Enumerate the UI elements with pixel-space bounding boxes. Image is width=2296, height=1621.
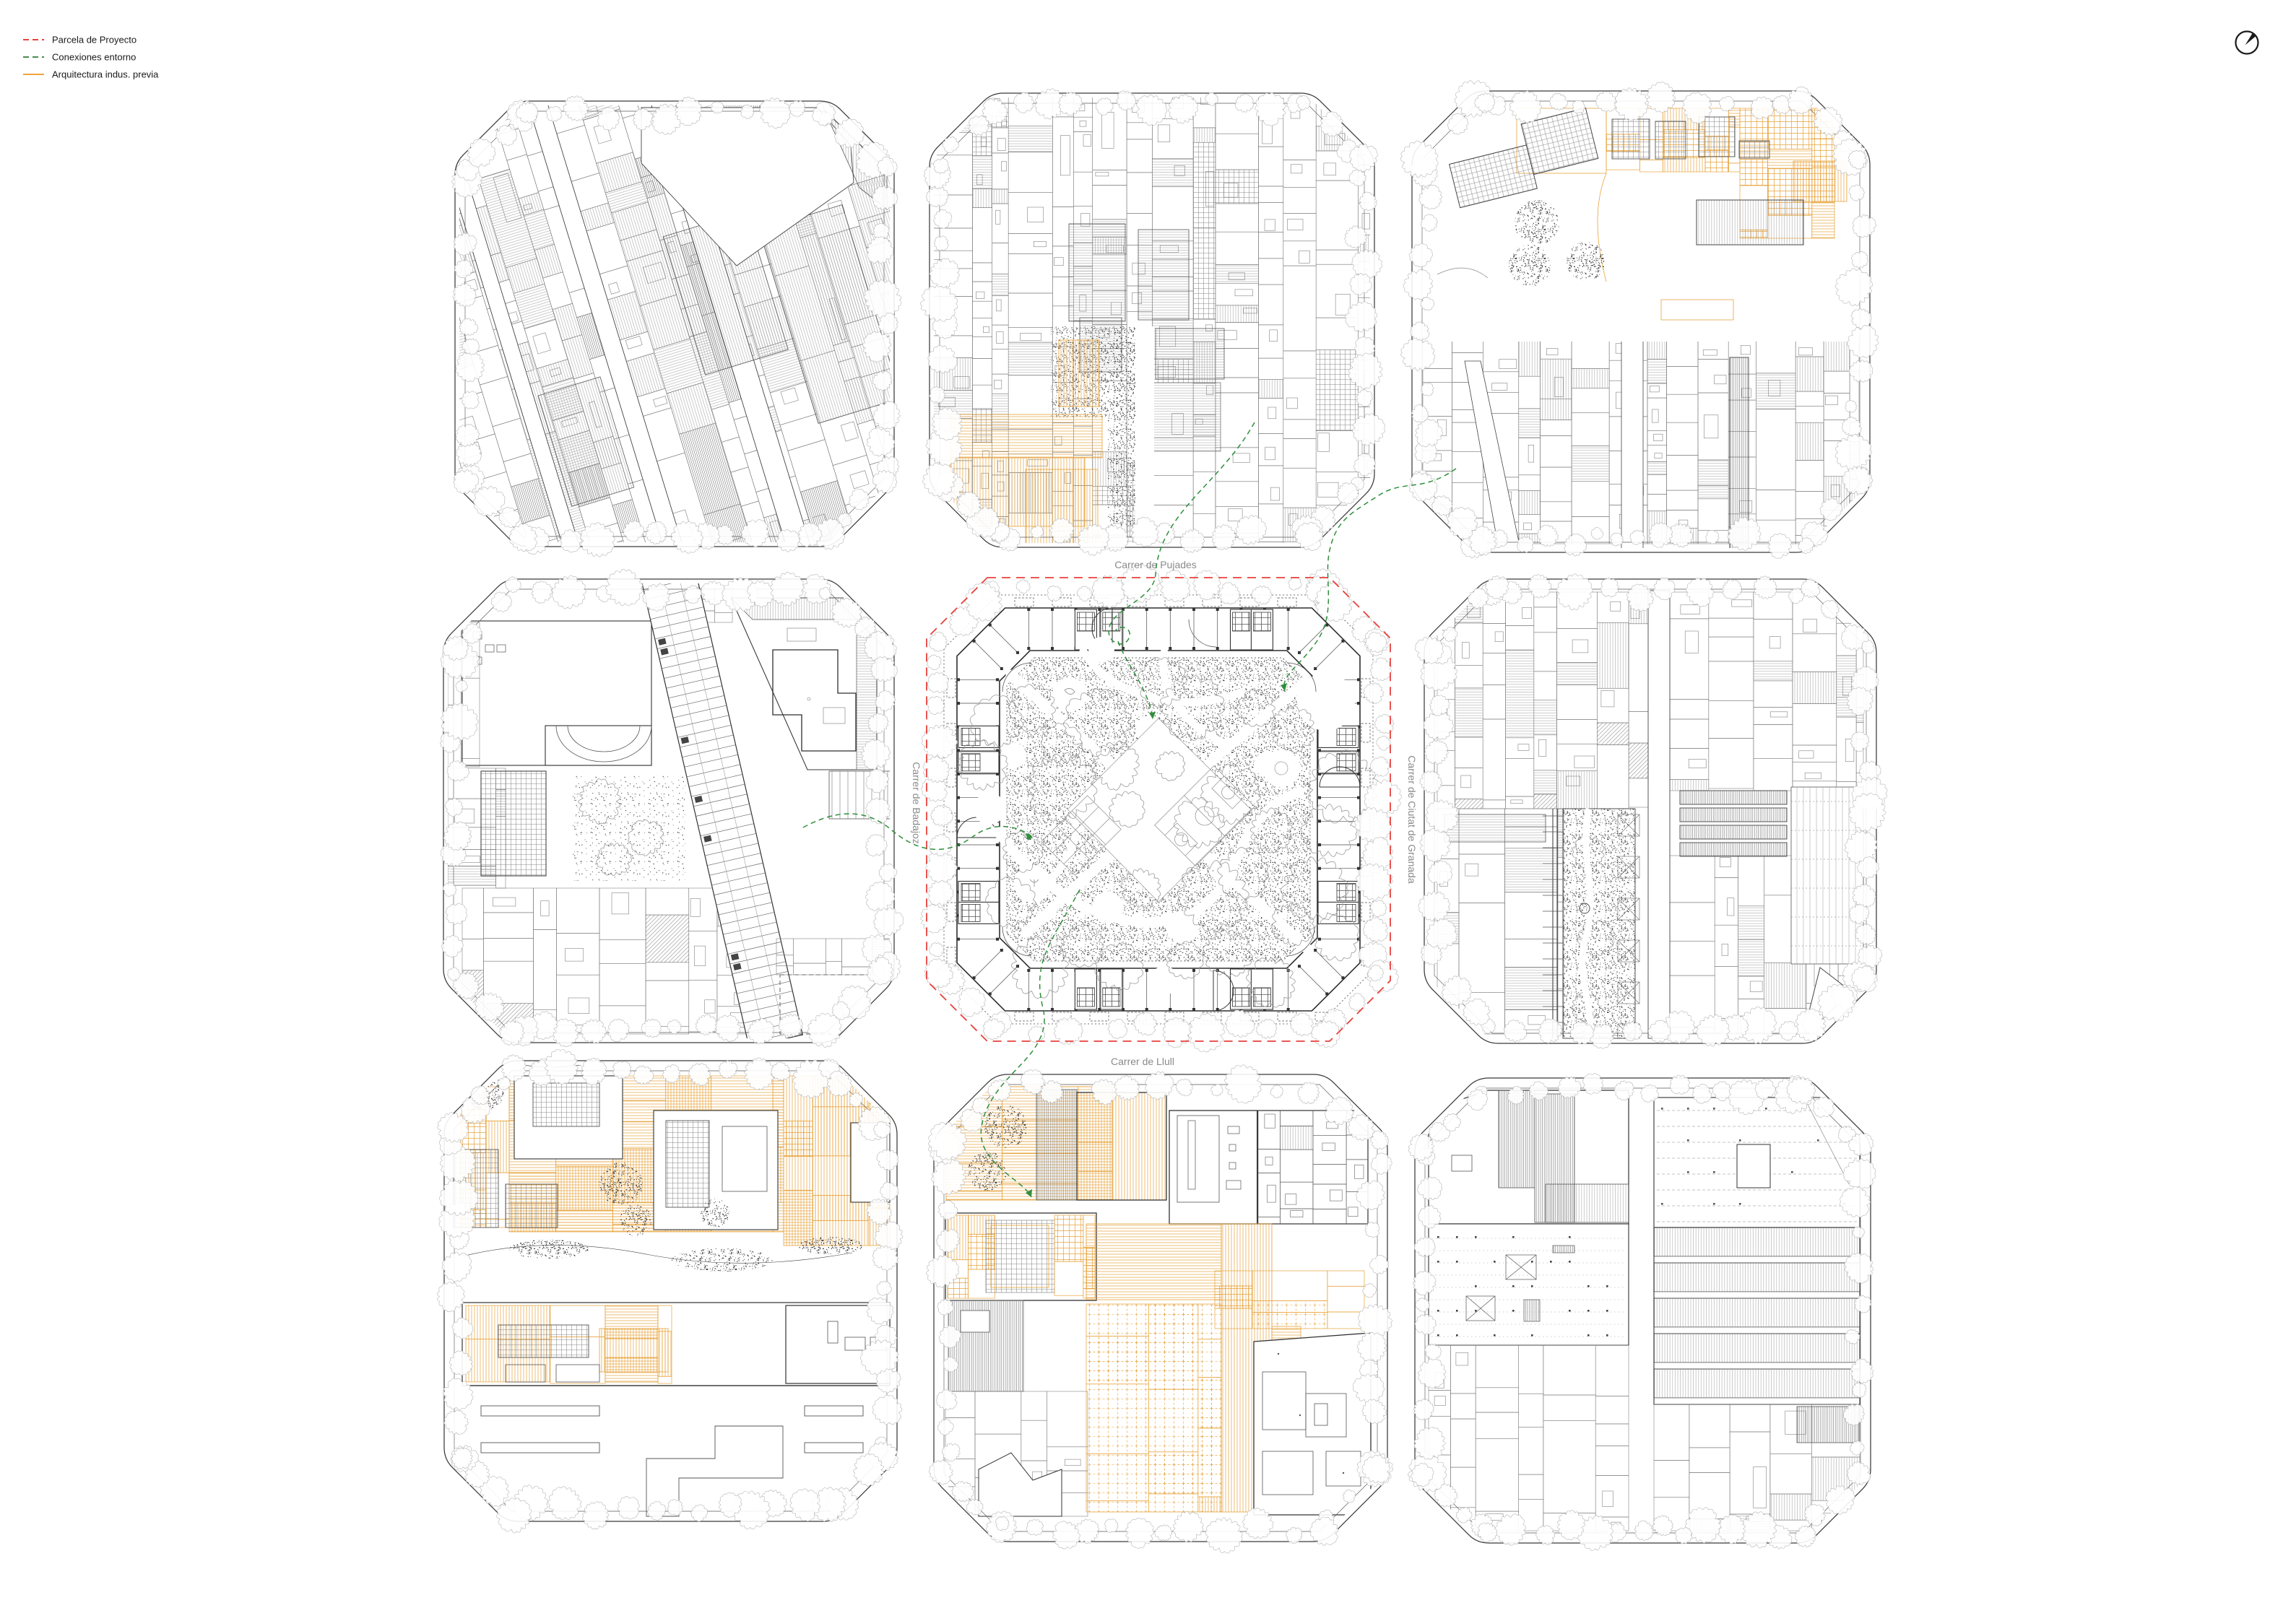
svg-text:Carrer de Ciutat de Granada: Carrer de Ciutat de Granada bbox=[1406, 755, 1418, 884]
svg-text:Parcela de Proyecto: Parcela de Proyecto bbox=[52, 35, 137, 45]
svg-text:Carrer de Llull: Carrer de Llull bbox=[1111, 1056, 1174, 1067]
svg-text:Carrer de Badajoz: Carrer de Badajoz bbox=[911, 762, 922, 844]
svg-text:Conexiones entorno: Conexiones entorno bbox=[52, 52, 136, 63]
svg-text:Arquitectura indus. previa: Arquitectura indus. previa bbox=[52, 69, 159, 80]
svg-text:Carrer de Pujades: Carrer de Pujades bbox=[1114, 559, 1197, 570]
